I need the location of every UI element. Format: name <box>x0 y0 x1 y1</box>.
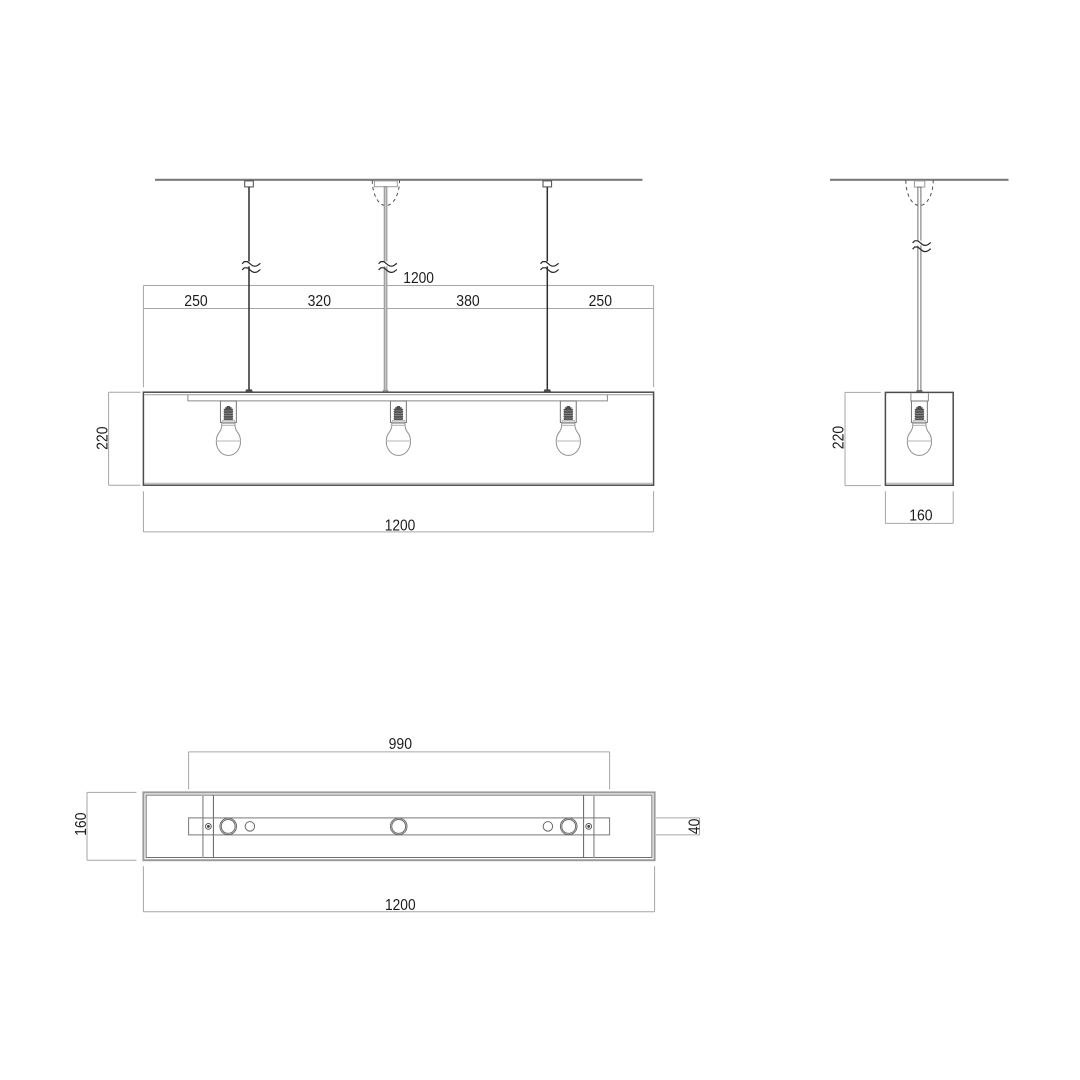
svg-text:250: 250 <box>184 293 207 310</box>
svg-text:1200: 1200 <box>385 897 416 914</box>
svg-text:250: 250 <box>589 293 612 310</box>
svg-text:380: 380 <box>456 293 479 310</box>
svg-text:990: 990 <box>389 736 412 753</box>
svg-text:160: 160 <box>909 507 932 524</box>
svg-text:320: 320 <box>308 293 331 310</box>
svg-text:40: 40 <box>687 819 704 835</box>
svg-text:1200: 1200 <box>403 270 434 287</box>
svg-text:160: 160 <box>73 812 90 835</box>
svg-text:220: 220 <box>831 426 848 449</box>
svg-text:220: 220 <box>94 426 111 449</box>
svg-text:1200: 1200 <box>385 517 416 534</box>
